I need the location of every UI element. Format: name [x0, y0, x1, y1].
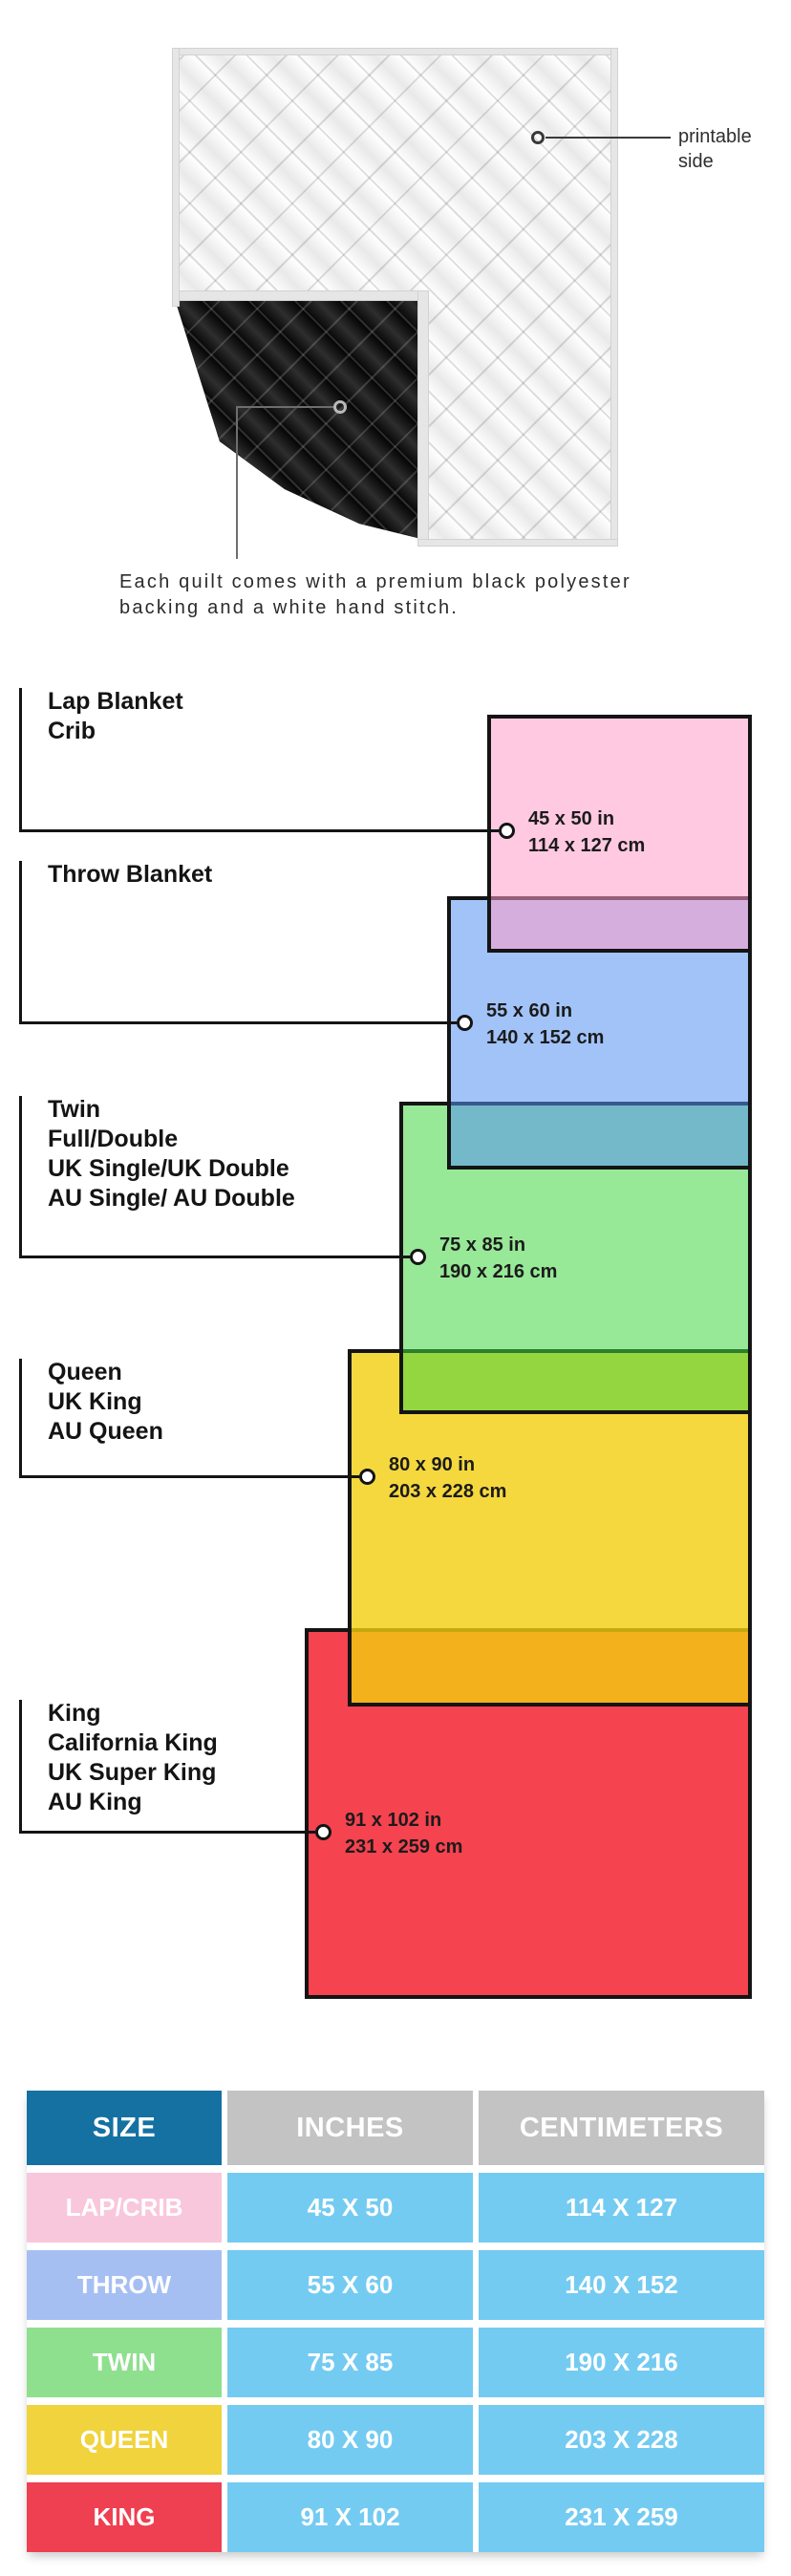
connector-twin [19, 1256, 410, 1258]
table-row-queen-cm: 203 X 228 [479, 2405, 764, 2475]
backing-leader-line-horizontal [237, 406, 333, 408]
label-queen-line1: Queen [48, 1358, 163, 1387]
dims-king-cm: 231 x 259 cm [345, 1834, 462, 1860]
quilt-caption-line2: backing and a white hand stitch. [119, 595, 631, 621]
label-twin: Twin Full/Double UK Single/UK Double AU … [48, 1095, 295, 1213]
dims-lap-crib: 45 x 50 in 114 x 127 cm [528, 805, 645, 859]
tick-lap-crib [19, 688, 22, 831]
size-table: SIZE INCHES CENTIMETERS LAP/CRIB 45 X 50… [27, 2091, 764, 2552]
connector-king [19, 1831, 315, 1834]
table-header-inches: INCHES [227, 2091, 473, 2165]
table-row-twin-inches: 75 X 85 [227, 2328, 473, 2397]
tick-throw [19, 861, 22, 1023]
printable-side-label-line2: side [678, 149, 752, 174]
tick-king [19, 1700, 22, 1833]
table-row-lap-inches: 45 X 50 [227, 2173, 473, 2243]
dims-twin-inches: 75 x 85 in [439, 1232, 557, 1258]
table-row-queen-size: QUEEN [27, 2405, 222, 2475]
label-twin-line2: Full/Double [48, 1125, 295, 1154]
label-twin-line1: Twin [48, 1095, 295, 1125]
dims-king: 91 x 102 in 231 x 259 cm [345, 1807, 462, 1860]
dims-queen-cm: 203 x 228 cm [389, 1478, 506, 1505]
printable-side-leader-line [545, 137, 671, 139]
circle-king [315, 1824, 331, 1840]
quilt-binding-left [172, 48, 180, 307]
table-row-lap-size: LAP/CRIB [27, 2173, 222, 2243]
circle-twin [410, 1249, 426, 1265]
label-king: King California King UK Super King AU Ki… [48, 1699, 218, 1817]
connector-throw [19, 1021, 457, 1024]
tick-queen [19, 1359, 22, 1477]
table-row-twin-cm: 190 X 216 [479, 2328, 764, 2397]
dims-twin-cm: 190 x 216 cm [439, 1258, 557, 1285]
tick-twin [19, 1096, 22, 1257]
quilt-fold-binding-vertical [417, 290, 429, 547]
table-row-throw-inches: 55 X 60 [227, 2250, 473, 2320]
label-twin-line4: AU Single/ AU Double [48, 1184, 295, 1213]
label-throw: Throw Blanket [48, 860, 212, 890]
table-row-king-inches: 91 X 102 [227, 2482, 473, 2552]
table-row-queen-inches: 80 X 90 [227, 2405, 473, 2475]
quilt-binding-right [610, 48, 618, 547]
dims-throw: 55 x 60 in 140 x 152 cm [486, 998, 604, 1051]
quilt-caption-line1: Each quilt comes with a premium black po… [119, 569, 631, 595]
label-lap-crib: Lap Blanket Crib [48, 687, 183, 746]
table-row-king-size: KING [27, 2482, 222, 2552]
dims-throw-cm: 140 x 152 cm [486, 1024, 604, 1051]
table-header-centimeters: CENTIMETERS [479, 2091, 764, 2165]
circle-lap-crib [499, 823, 515, 839]
backing-marker-circle [333, 400, 347, 414]
table-row-twin-size: TWIN [27, 2328, 222, 2397]
table-row-throw-cm: 140 X 152 [479, 2250, 764, 2320]
dims-queen-inches: 80 x 90 in [389, 1451, 506, 1478]
label-king-line2: California King [48, 1728, 218, 1758]
connector-queen [19, 1475, 359, 1478]
label-queen-line3: AU Queen [48, 1417, 163, 1447]
label-king-line4: AU King [48, 1788, 218, 1817]
dims-lap-crib-cm: 114 x 127 cm [528, 832, 645, 859]
table-header-size: SIZE [27, 2091, 222, 2165]
backing-leader-line-vertical [236, 406, 238, 559]
label-lap-crib-line1: Lap Blanket [48, 687, 183, 717]
table-row-king-cm: 231 X 259 [479, 2482, 764, 2552]
label-twin-line3: UK Single/UK Double [48, 1154, 295, 1184]
connector-lap-crib [19, 829, 499, 832]
printable-side-label-line1: printable [678, 124, 752, 149]
quilt-fold-binding-horizontal [172, 290, 429, 301]
circle-throw [457, 1015, 473, 1031]
label-queen-line2: UK King [48, 1387, 163, 1417]
label-queen: Queen UK King AU Queen [48, 1358, 163, 1447]
label-king-line3: UK Super King [48, 1758, 218, 1788]
label-lap-crib-line2: Crib [48, 717, 183, 746]
label-king-line1: King [48, 1699, 218, 1728]
label-throw-line1: Throw Blanket [48, 860, 212, 890]
dims-lap-crib-inches: 45 x 50 in [528, 805, 645, 832]
circle-queen [359, 1469, 375, 1485]
quilt-binding-top [172, 48, 618, 55]
quilt-binding-bottom [417, 539, 618, 547]
table-row-throw-size: THROW [27, 2250, 222, 2320]
dims-king-inches: 91 x 102 in [345, 1807, 462, 1834]
dims-twin: 75 x 85 in 190 x 216 cm [439, 1232, 557, 1285]
dims-throw-inches: 55 x 60 in [486, 998, 604, 1024]
dims-queen: 80 x 90 in 203 x 228 cm [389, 1451, 506, 1505]
printable-side-label: printable side [678, 124, 752, 174]
quilt-caption: Each quilt comes with a premium black po… [119, 569, 631, 621]
infographic-canvas: printable side Each quilt comes with a p… [0, 0, 791, 2576]
quilt-illustration [172, 48, 618, 547]
printable-side-marker-circle [531, 131, 545, 144]
table-row-lap-cm: 114 X 127 [479, 2173, 764, 2243]
